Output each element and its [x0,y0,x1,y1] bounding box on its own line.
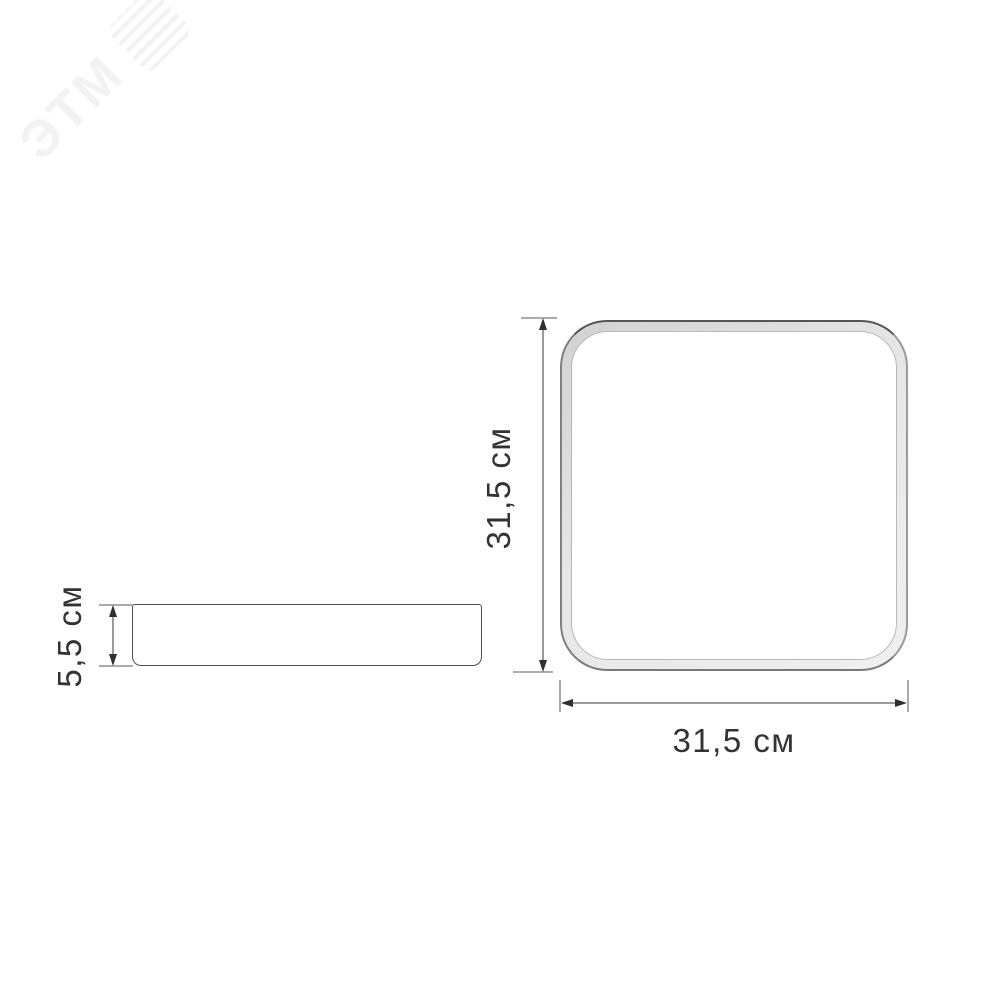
extension-line-right [907,680,909,712]
height-dimension-line [542,322,544,667]
side-view-height-label: 5,5 см [51,584,89,687]
top-view-width-label: 31,5 см [672,722,795,760]
extension-line-left [559,680,561,712]
extension-tick-bottom [513,671,553,673]
arrow-right-icon [895,699,907,707]
watermark: ЭТМ [0,0,234,214]
product-dimension-drawing: ЭТМ 5,5 см 31,5 см 31,5 см [0,0,1000,1000]
arrow-up-icon [539,318,547,330]
arrow-up-icon [109,605,117,617]
width-dimension-line [564,702,904,704]
arrow-down-icon [109,654,117,666]
top-view-height-label: 31,5 см [480,426,518,549]
top-view-frame [560,320,908,671]
arrow-left-icon [561,699,573,707]
arrow-down-icon [539,660,547,672]
watermark-etm-text: ЭТМ [11,47,133,169]
top-view-diffuser [571,331,897,660]
side-view-outline [132,604,482,666]
watermark-logo-icon [105,0,193,75]
